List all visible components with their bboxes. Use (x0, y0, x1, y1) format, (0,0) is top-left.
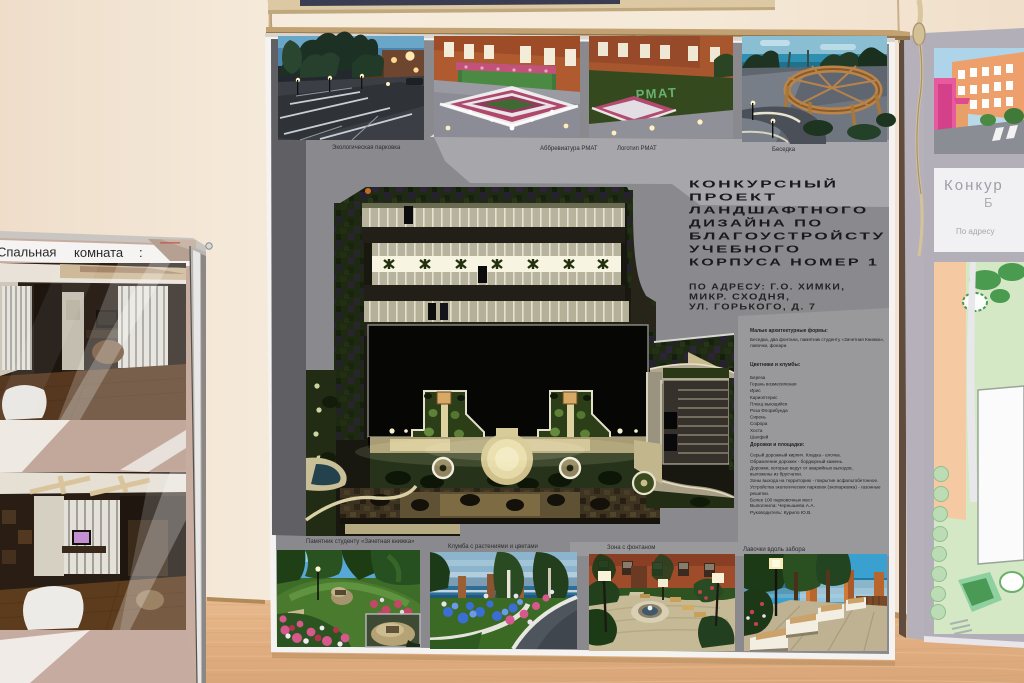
svg-text:Руководитель: Курило Ю.В.: Руководитель: Курило Ю.В. (750, 510, 812, 516)
svg-text:Клумба с растениями и цветами: Клумба с растениями и цветами (448, 544, 538, 550)
svg-text:По адресу: По адресу (956, 227, 994, 236)
svg-text:Обрамление дорожек - бордюрный: Обрамление дорожек - бордюрный камень. (750, 458, 843, 464)
svg-text:Герань возмесиленая: Герань возмесиленая (750, 382, 797, 387)
svg-text:Хоста: Хоста (750, 428, 763, 433)
svg-text:Устройства экологических парко: Устройства экологических парковок (экопа… (750, 484, 881, 490)
svg-text:Дорожки и площадки:: Дорожки и площадки: (750, 442, 805, 448)
svg-text:лавочки, фонари.: лавочки, фонари. (750, 343, 787, 348)
svg-text:Малые архитектурные формы:: Малые архитектурные формы: (750, 327, 828, 334)
svg-text:выложены из брусчатки.: выложены из брусчатки. (750, 472, 802, 477)
svg-text:Зоны выхода на территорию - по: Зоны выхода на территорию - покрытие асф… (750, 478, 878, 483)
svg-text:Плющ выющийся: Плющ выющийся (750, 400, 788, 406)
svg-text:ПО АДРЕСУ: Г.О. ХИМКИ,: ПО АДРЕСУ: Г.О. ХИМКИ, (689, 283, 845, 292)
svg-text:МИКР. СХОДНЯ,: МИКР. СХОДНЯ, (689, 293, 790, 302)
svg-text:Беседка, два фонтана, памятник: Беседка, два фонтана, памятник студенту … (750, 337, 884, 342)
svg-text:КОРПУСА НОМЕР 1: КОРПУСА НОМЕР 1 (689, 256, 879, 267)
svg-text:Спальная: Спальная (0, 245, 56, 260)
svg-text:Более 100 парковочных мест: Более 100 парковочных мест (750, 497, 813, 502)
svg-text:ЛАНДШАФТНОГО: ЛАНДШАФТНОГО (689, 204, 869, 216)
svg-text:БЛАГОУСТРОЙСТУ: БЛАГОУСТРОЙСТУ (689, 229, 886, 241)
svg-text:Серый дорожный кирпич. Кладка: Серый дорожный кирпич. Кладка - елочка. (750, 452, 841, 458)
svg-text:Зона с фонтаном: Зона с фонтаном (607, 545, 655, 551)
svg-text:Беседка: Беседка (772, 147, 796, 153)
svg-text:Сирень: Сирень (750, 415, 767, 420)
svg-text:Лавочки вдоль забора: Лавочки вдоль забора (743, 547, 806, 553)
svg-text:Дорожки, которые ведут от авар: Дорожки, которые ведут от аварийных выхо… (750, 464, 853, 470)
svg-text:Памятник студенту «Зачетная кн: Памятник студенту «Зачетная книжка» (306, 539, 415, 545)
svg-text:Б: Б (984, 195, 995, 210)
svg-text:Шалфей: Шалфей (750, 433, 769, 439)
svg-text:ПРОЕКТ: ПРОЕКТ (689, 192, 778, 203)
svg-text:ДИЗАЙНА ПО: ДИЗАЙНА ПО (689, 218, 824, 229)
svg-text:Береза: Береза (750, 375, 766, 380)
svg-text:Роза Флорибунда: Роза Флорибунда (750, 408, 788, 413)
svg-text::: : (139, 245, 143, 260)
svg-text:Аббревиатура РМАТ: Аббревиатура РМАТ (540, 146, 598, 152)
svg-text:Софора: Софора (750, 421, 768, 426)
svg-text:Ирис: Ирис (750, 388, 761, 393)
svg-text:Экологическая парковка: Экологическая парковка (332, 145, 401, 151)
svg-text:КОНКУРСНЫЙ: КОНКУРСНЫЙ (689, 177, 838, 190)
svg-text:Кариоптерис: Кариоптерис (750, 395, 778, 400)
svg-text:УЧЕБНОГО: УЧЕБНОГО (689, 243, 801, 255)
svg-text:Конкур: Конкур (944, 177, 1004, 194)
svg-text:Цветники и клумбы:: Цветники и клумбы: (750, 361, 801, 368)
svg-text:Выполнила: Чернышева А.А.: Выполнила: Чернышева А.А. (750, 503, 815, 509)
svg-text:комната: комната (74, 245, 124, 260)
svg-text:решетки.: решетки. (750, 491, 769, 496)
svg-text:Логотип РМАТ: Логотип РМАТ (617, 146, 657, 152)
svg-text:УЛ. ГОРЬКОГО, Д. 7: УЛ. ГОРЬКОГО, Д. 7 (689, 303, 816, 312)
